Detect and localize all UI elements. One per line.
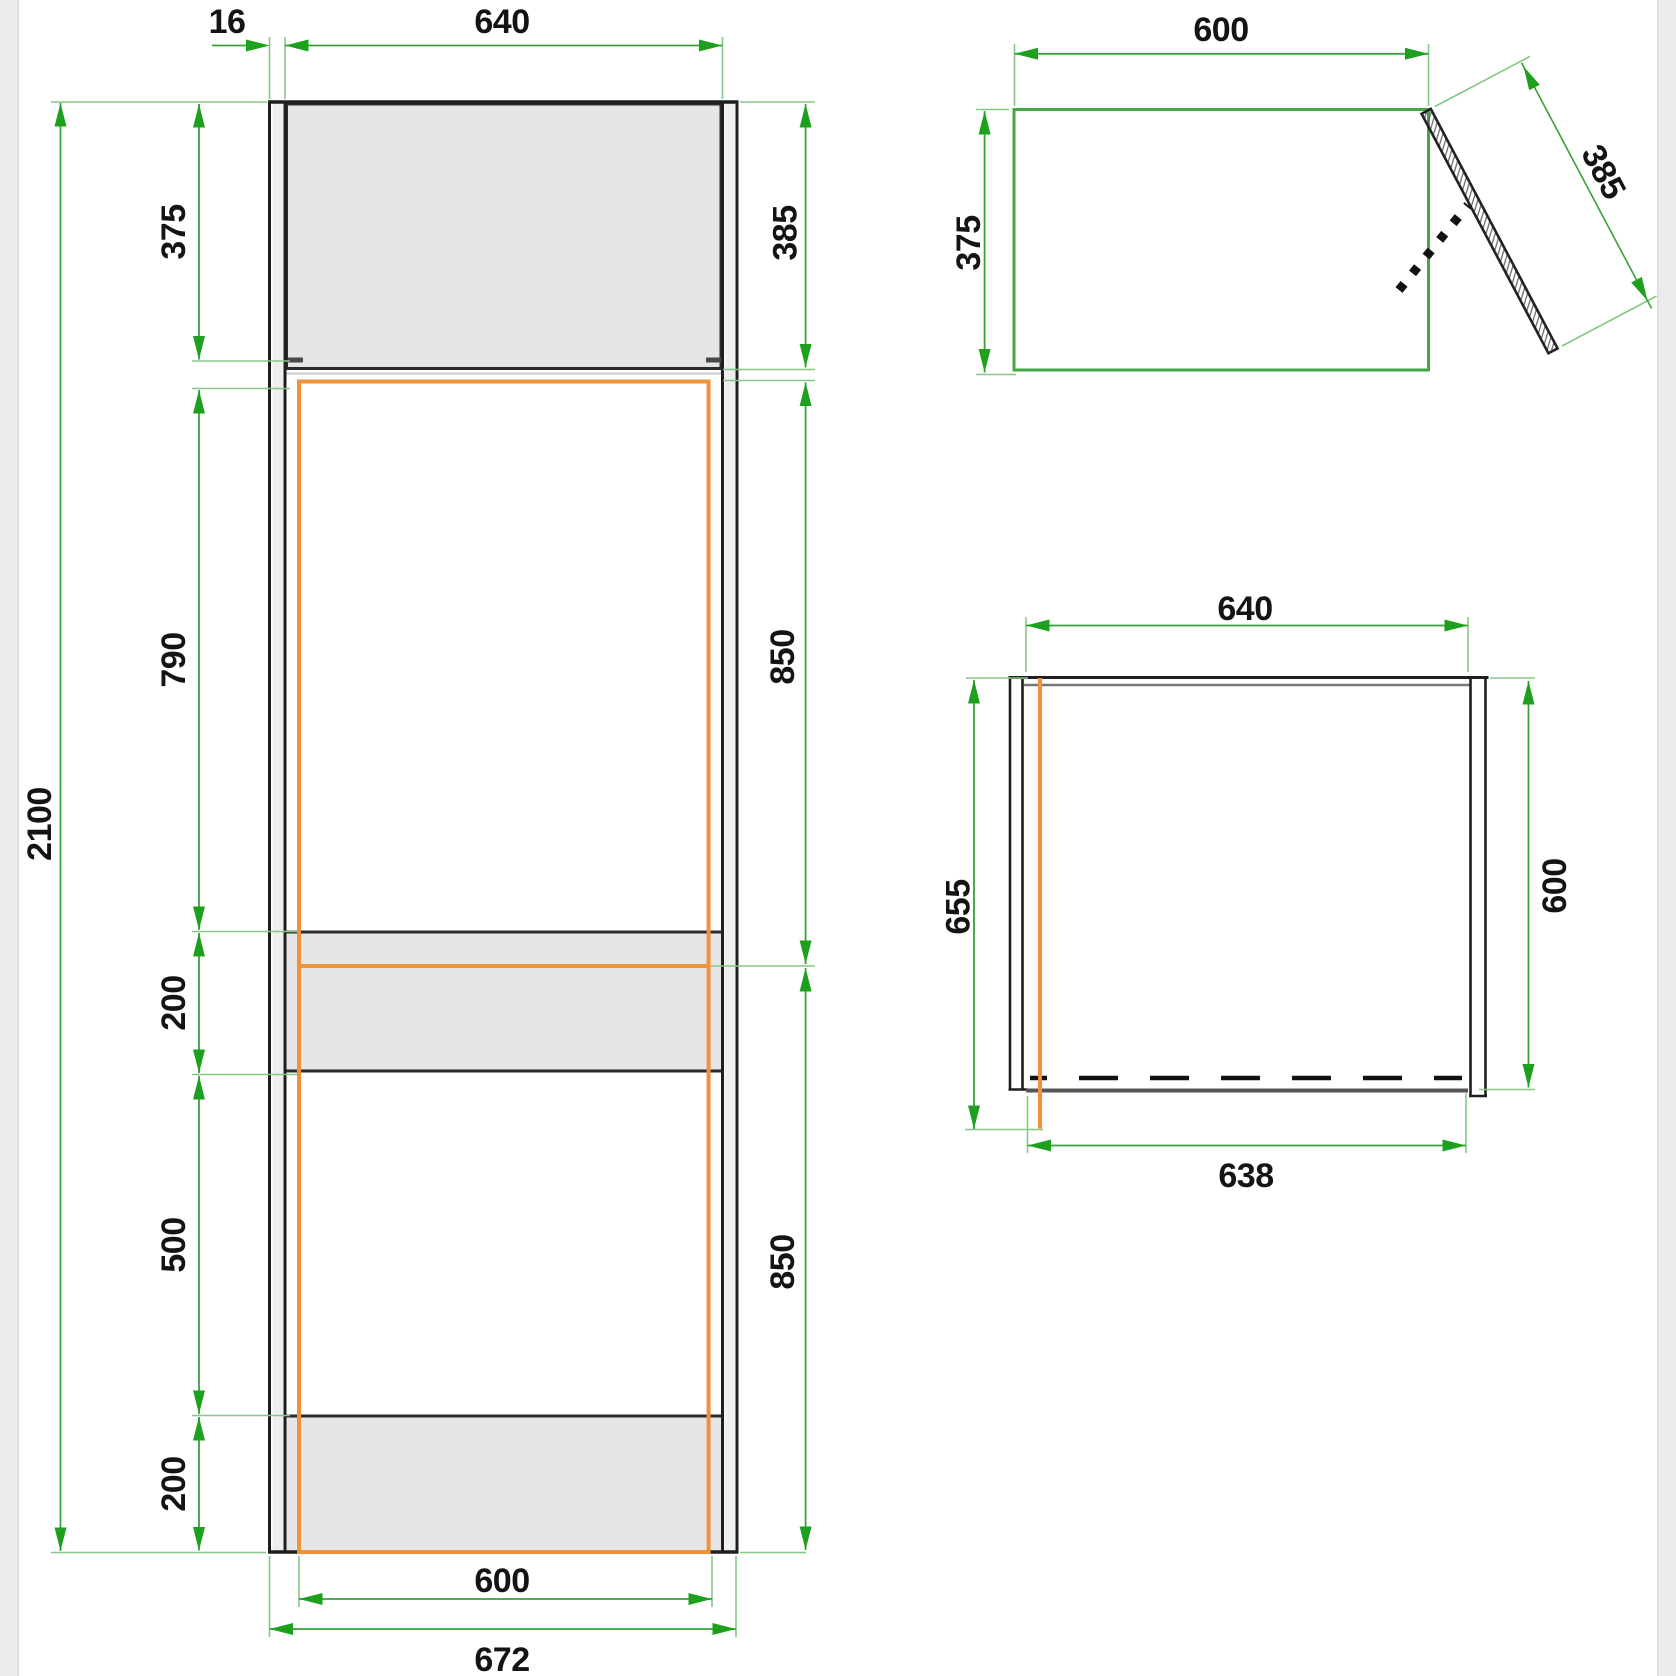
svg-text:600: 600 (474, 1562, 529, 1600)
svg-text:385: 385 (767, 205, 805, 260)
svg-text:655: 655 (940, 879, 978, 934)
svg-text:850: 850 (764, 1234, 802, 1289)
svg-text:375: 375 (155, 204, 193, 259)
svg-text:640: 640 (1217, 590, 1272, 628)
svg-text:200: 200 (155, 975, 193, 1030)
svg-text:640: 640 (474, 3, 529, 41)
svg-text:375: 375 (950, 215, 988, 270)
svg-text:600: 600 (1536, 858, 1574, 913)
svg-text:200: 200 (155, 1456, 193, 1511)
svg-text:2100: 2100 (21, 787, 59, 861)
svg-text:638: 638 (1218, 1157, 1273, 1195)
svg-text:790: 790 (155, 632, 193, 687)
svg-text:850: 850 (764, 629, 802, 684)
svg-text:500: 500 (155, 1217, 193, 1272)
svg-text:600: 600 (1193, 11, 1248, 49)
svg-text:672: 672 (474, 1641, 529, 1676)
svg-text:16: 16 (209, 3, 246, 41)
